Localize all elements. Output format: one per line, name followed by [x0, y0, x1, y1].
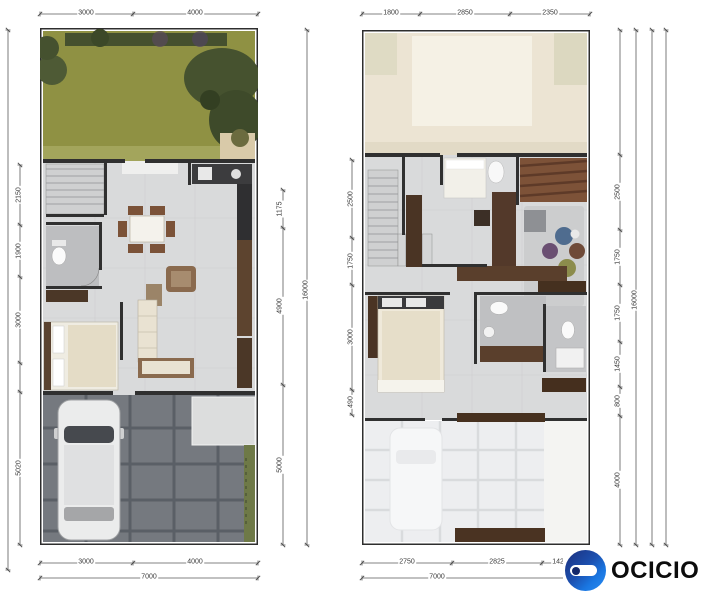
- dimension-label: 2850: [456, 10, 474, 17]
- cabinet: [542, 378, 586, 392]
- dimension-label: 3000: [77, 559, 95, 566]
- dimension-label: 7000: [140, 574, 158, 581]
- ground-floor-plan: [40, 28, 258, 545]
- staircase: [46, 164, 104, 214]
- dimension-label: 4900: [277, 297, 284, 315]
- dimension-label: 1750: [615, 248, 622, 266]
- dimension-label: 2150: [16, 186, 23, 204]
- garage: [43, 395, 255, 542]
- dimension-label: 16000: [632, 289, 639, 310]
- dimension-label: 2500: [615, 183, 622, 201]
- dimension-label: 2350: [541, 10, 559, 17]
- wardrobe: [46, 290, 88, 302]
- dimension-label: 3000: [77, 10, 95, 17]
- floor-plan-sheet: 3000 4000 3000 4000 7000 2150 1900 3000 …: [0, 0, 703, 594]
- bathroom-3: [546, 306, 586, 372]
- upper-floor-plan: [362, 30, 590, 545]
- dimension-label: 1450: [615, 355, 622, 373]
- cabinet: [480, 346, 546, 362]
- dimension-label: 4000: [186, 559, 204, 566]
- dimension-label: 4000: [186, 10, 204, 17]
- bathroom-2: [480, 296, 546, 346]
- bedroom-3: [368, 296, 444, 392]
- roof-over-garage: [365, 413, 587, 542]
- dimension-label: 2500: [348, 190, 355, 208]
- dimension-label: 3000: [348, 328, 355, 346]
- ocicio-logo: OCICIO: [563, 549, 701, 592]
- dimension-label: 16000: [303, 279, 310, 300]
- dimension-label: 2750: [398, 559, 416, 566]
- ocicio-logo-text: OCICIO: [611, 557, 699, 585]
- dimension-label: 5000: [277, 456, 284, 474]
- dimension-label: 1900: [16, 242, 23, 260]
- dimension-label: 1800: [382, 10, 400, 17]
- car: [54, 400, 124, 540]
- dimension-label: 4000: [615, 471, 622, 489]
- dimension-label: 7000: [428, 574, 446, 581]
- cabinet: [457, 266, 567, 281]
- dimension-label: 1750: [348, 252, 355, 270]
- dimension-label: 3000: [16, 311, 23, 329]
- dimension-label: 800: [615, 394, 622, 408]
- bedroom-bed: [44, 322, 118, 390]
- ocicio-logo-icon: [565, 550, 606, 591]
- dimension-label: 2825: [488, 559, 506, 566]
- bathroom: [46, 226, 99, 286]
- dimension-label: 1750: [615, 304, 622, 322]
- dimension-label: 1175: [277, 200, 284, 217]
- garden: [40, 29, 258, 161]
- dimension-label: 5020: [16, 459, 23, 477]
- roof-hatch: [520, 158, 587, 202]
- cabinet: [538, 281, 586, 293]
- roof-terrace: [365, 33, 587, 155]
- dimension-label: 490: [348, 395, 355, 409]
